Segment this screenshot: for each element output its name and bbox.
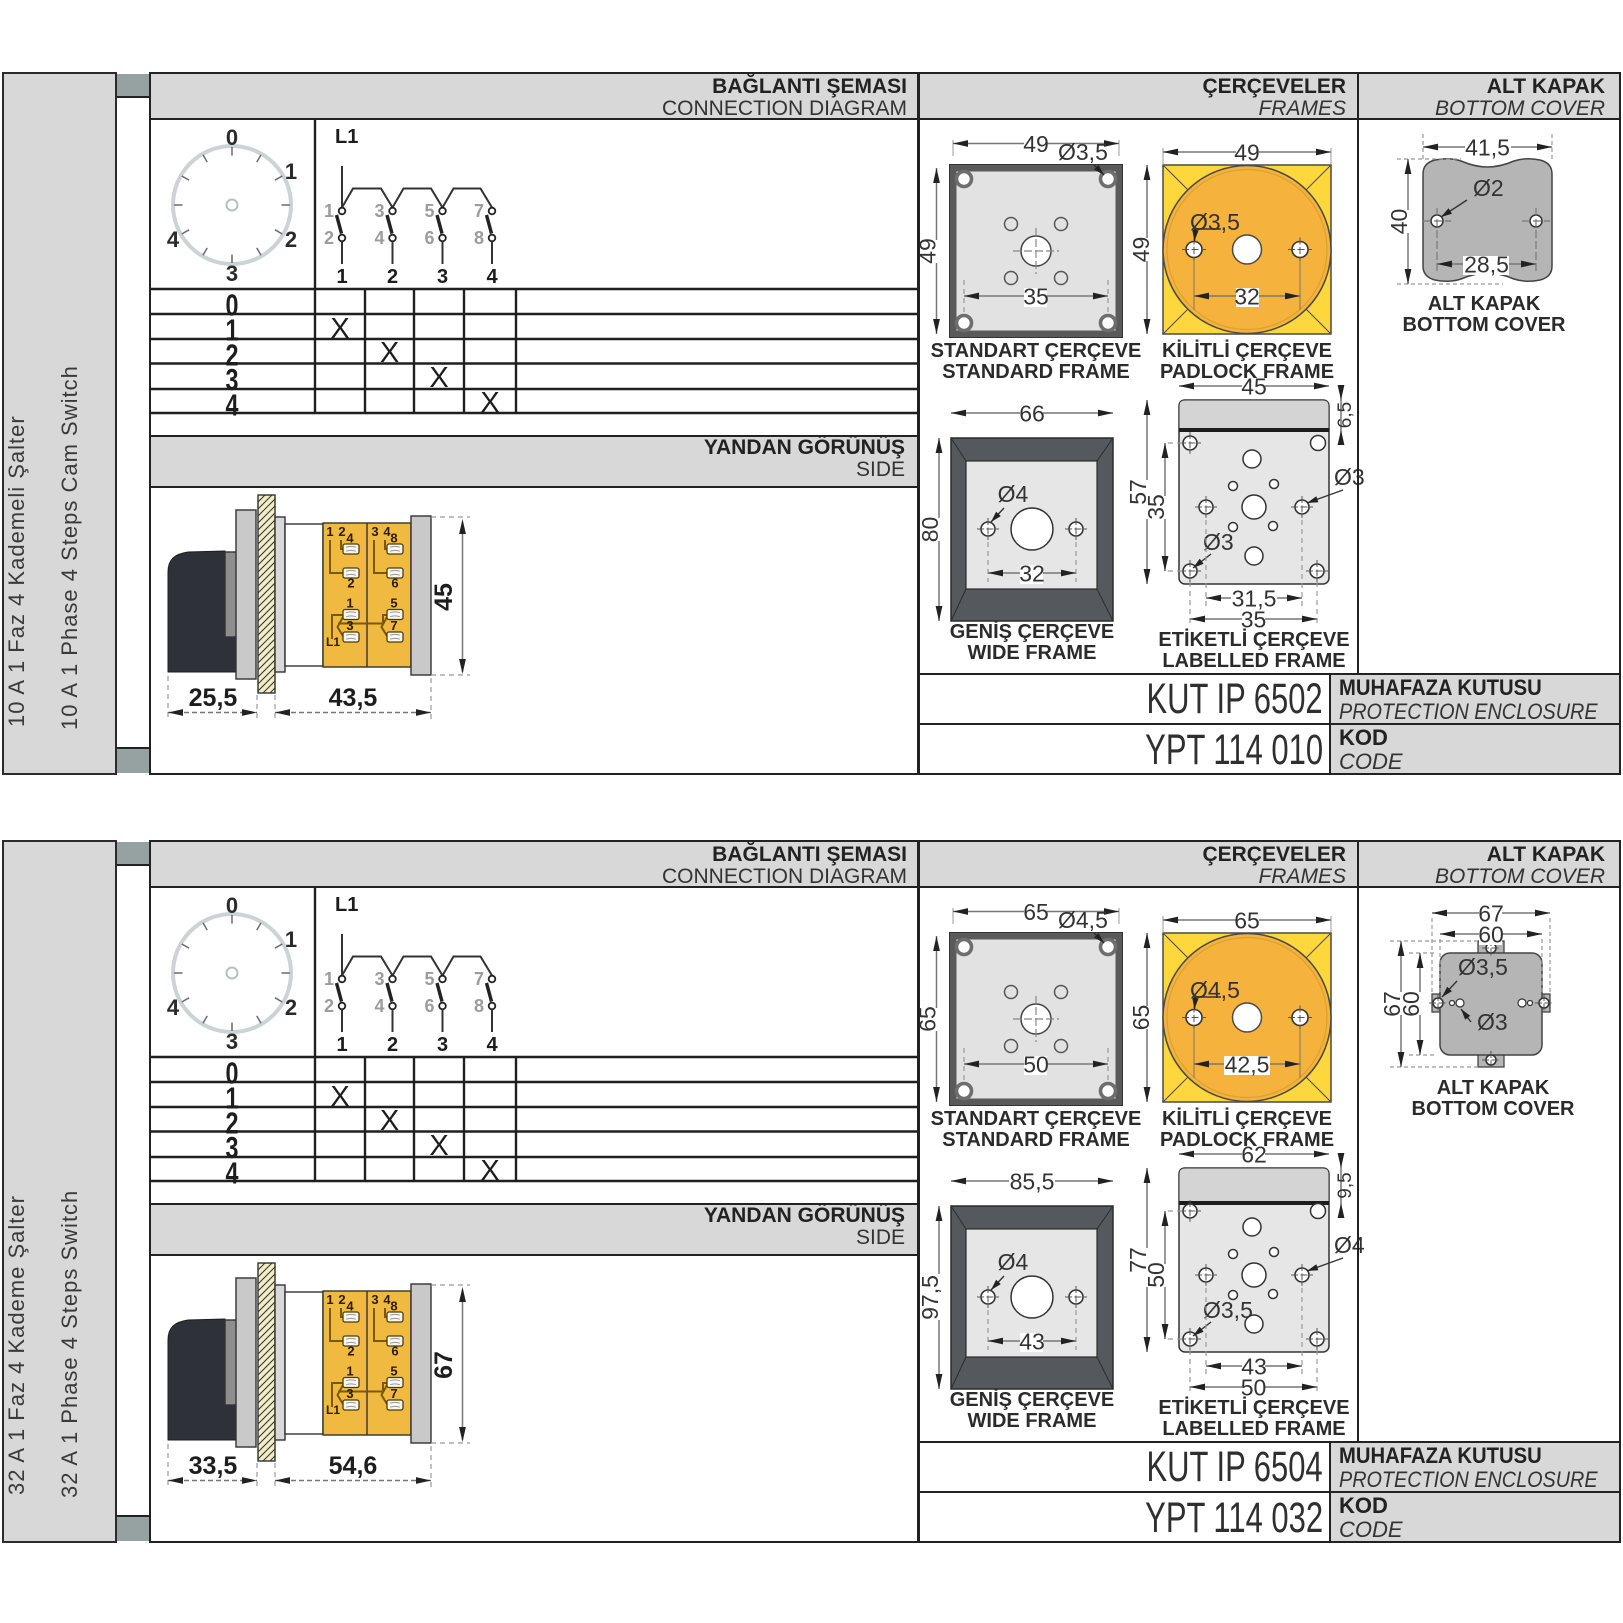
svg-text:45: 45 bbox=[430, 583, 458, 611]
svg-text:1: 1 bbox=[326, 524, 333, 539]
svg-text:60: 60 bbox=[1398, 991, 1424, 1017]
svg-text:X: X bbox=[380, 1105, 399, 1137]
svg-text:50: 50 bbox=[1143, 1262, 1169, 1288]
svg-text:45: 45 bbox=[1241, 373, 1267, 399]
svg-text:3: 3 bbox=[437, 1034, 448, 1056]
svg-text:1: 1 bbox=[285, 927, 297, 952]
svg-text:Ø2: Ø2 bbox=[1473, 175, 1504, 201]
svg-text:85,5: 85,5 bbox=[1010, 1168, 1055, 1194]
svg-text:1: 1 bbox=[324, 969, 334, 989]
svg-text:BOTTOM COVER: BOTTOM COVER bbox=[1403, 314, 1567, 336]
svg-text:43,5: 43,5 bbox=[329, 684, 378, 712]
svg-text:GENİŞ ÇERÇEVE: GENİŞ ÇERÇEVE bbox=[950, 1388, 1114, 1411]
svg-text:2: 2 bbox=[324, 228, 334, 248]
svg-text:5: 5 bbox=[424, 969, 434, 989]
svg-text:4: 4 bbox=[226, 388, 240, 423]
svg-text:L1: L1 bbox=[326, 1403, 340, 1417]
svg-text:WIDE FRAME: WIDE FRAME bbox=[968, 642, 1097, 664]
svg-text:1: 1 bbox=[324, 201, 334, 221]
svg-text:49: 49 bbox=[1128, 237, 1154, 263]
svg-text:54,6: 54,6 bbox=[329, 1452, 378, 1480]
svg-text:LABELLED FRAME: LABELLED FRAME bbox=[1162, 1418, 1345, 1440]
svg-text:6: 6 bbox=[391, 1344, 398, 1359]
svg-text:ALT KAPAK: ALT KAPAK bbox=[1428, 293, 1541, 315]
svg-text:WIDE FRAME: WIDE FRAME bbox=[968, 1410, 1097, 1432]
svg-text:Ø3,5: Ø3,5 bbox=[1458, 954, 1508, 980]
svg-text:40: 40 bbox=[1386, 209, 1412, 235]
svg-text:4: 4 bbox=[346, 531, 354, 546]
svg-text:28,5: 28,5 bbox=[1464, 251, 1509, 277]
svg-text:ETİKETLİ ÇERÇEVE: ETİKETLİ ÇERÇEVE bbox=[1158, 628, 1349, 651]
svg-text:X: X bbox=[480, 387, 499, 419]
svg-text:X: X bbox=[380, 337, 399, 369]
svg-text:LABELLED FRAME: LABELLED FRAME bbox=[1162, 650, 1345, 672]
svg-text:X: X bbox=[330, 1081, 349, 1113]
svg-text:9,5: 9,5 bbox=[1335, 1172, 1356, 1198]
svg-text:4: 4 bbox=[346, 1299, 354, 1314]
svg-text:8: 8 bbox=[390, 1299, 397, 1314]
svg-text:2: 2 bbox=[324, 996, 334, 1016]
svg-text:35: 35 bbox=[1023, 283, 1049, 309]
svg-text:3: 3 bbox=[437, 266, 448, 288]
svg-text:65: 65 bbox=[1023, 899, 1049, 925]
svg-text:49: 49 bbox=[1023, 131, 1049, 157]
svg-text:3: 3 bbox=[371, 524, 378, 539]
svg-text:65: 65 bbox=[1128, 1005, 1154, 1031]
svg-text:Ø3: Ø3 bbox=[1477, 1009, 1508, 1035]
svg-text:BOTTOM COVER: BOTTOM COVER bbox=[1412, 1098, 1576, 1120]
svg-text:4: 4 bbox=[486, 1034, 498, 1056]
svg-text:6: 6 bbox=[424, 228, 434, 248]
svg-text:2: 2 bbox=[338, 524, 345, 539]
svg-text:4: 4 bbox=[383, 524, 391, 539]
svg-text:2: 2 bbox=[387, 1034, 398, 1056]
svg-text:7: 7 bbox=[390, 1386, 397, 1401]
svg-text:1: 1 bbox=[336, 1034, 347, 1056]
svg-text:1: 1 bbox=[336, 266, 347, 288]
svg-text:32: 32 bbox=[1019, 560, 1045, 586]
svg-text:2: 2 bbox=[338, 1292, 345, 1307]
svg-text:3: 3 bbox=[226, 1029, 238, 1054]
svg-text:60: 60 bbox=[1478, 921, 1504, 947]
svg-text:4: 4 bbox=[486, 266, 498, 288]
svg-text:X: X bbox=[330, 313, 349, 345]
svg-text:4: 4 bbox=[383, 1292, 391, 1307]
svg-text:KİLİTLİ ÇERÇEVE: KİLİTLİ ÇERÇEVE bbox=[1162, 339, 1332, 362]
svg-text:4: 4 bbox=[167, 995, 180, 1020]
svg-text:L1: L1 bbox=[335, 894, 358, 916]
svg-text:4: 4 bbox=[226, 1156, 240, 1191]
svg-text:3: 3 bbox=[346, 1386, 353, 1401]
svg-text:2: 2 bbox=[347, 1344, 354, 1359]
svg-text:X: X bbox=[429, 362, 448, 394]
svg-text:7: 7 bbox=[390, 618, 397, 633]
svg-text:25,5: 25,5 bbox=[189, 684, 238, 712]
svg-text:Ø3,5: Ø3,5 bbox=[1203, 1297, 1253, 1323]
svg-text:STANDART ÇERÇEVE: STANDART ÇERÇEVE bbox=[931, 1108, 1142, 1130]
svg-text:97,5: 97,5 bbox=[917, 1275, 943, 1320]
svg-text:4: 4 bbox=[167, 227, 180, 252]
svg-text:Ø4: Ø4 bbox=[998, 1249, 1029, 1275]
svg-text:41,5: 41,5 bbox=[1465, 134, 1510, 160]
svg-text:2: 2 bbox=[285, 227, 297, 252]
svg-text:2: 2 bbox=[347, 576, 354, 591]
svg-text:80: 80 bbox=[917, 517, 943, 543]
svg-text:ETİKETLİ ÇERÇEVE: ETİKETLİ ÇERÇEVE bbox=[1158, 1396, 1349, 1419]
svg-text:65: 65 bbox=[1234, 907, 1260, 933]
svg-text:6: 6 bbox=[391, 576, 398, 591]
svg-text:Ø3: Ø3 bbox=[1203, 529, 1234, 555]
svg-text:3: 3 bbox=[346, 618, 353, 633]
svg-text:8: 8 bbox=[390, 531, 397, 546]
svg-text:6: 6 bbox=[424, 996, 434, 1016]
svg-text:Ø4: Ø4 bbox=[998, 481, 1029, 507]
svg-text:X: X bbox=[480, 1155, 499, 1187]
svg-text:5: 5 bbox=[390, 1364, 397, 1379]
svg-text:66: 66 bbox=[1019, 400, 1045, 426]
svg-text:3: 3 bbox=[371, 1292, 378, 1307]
svg-text:STANDARD FRAME: STANDARD FRAME bbox=[942, 361, 1129, 383]
svg-text:STANDARD FRAME: STANDARD FRAME bbox=[942, 1129, 1129, 1151]
svg-text:0: 0 bbox=[226, 893, 238, 918]
svg-text:5: 5 bbox=[424, 201, 434, 221]
svg-text:2: 2 bbox=[387, 266, 398, 288]
svg-text:33,5: 33,5 bbox=[189, 1452, 238, 1480]
svg-text:62: 62 bbox=[1241, 1141, 1267, 1167]
svg-text:32: 32 bbox=[1234, 283, 1260, 309]
svg-text:0: 0 bbox=[226, 125, 238, 150]
svg-text:49: 49 bbox=[1234, 139, 1260, 165]
svg-text:35: 35 bbox=[1143, 494, 1169, 520]
svg-text:8: 8 bbox=[474, 996, 484, 1016]
svg-text:L1: L1 bbox=[326, 635, 340, 649]
svg-text:1: 1 bbox=[346, 1364, 353, 1379]
svg-text:3: 3 bbox=[226, 261, 238, 286]
svg-text:ALT KAPAK: ALT KAPAK bbox=[1437, 1077, 1550, 1099]
svg-text:Ø4,5: Ø4,5 bbox=[1058, 907, 1108, 933]
svg-text:7: 7 bbox=[474, 969, 484, 989]
svg-text:1: 1 bbox=[326, 1292, 333, 1307]
svg-text:3: 3 bbox=[374, 201, 384, 221]
svg-text:GENİŞ ÇERÇEVE: GENİŞ ÇERÇEVE bbox=[950, 620, 1114, 643]
svg-text:43: 43 bbox=[1019, 1328, 1045, 1354]
svg-text:2: 2 bbox=[285, 995, 297, 1020]
svg-text:67: 67 bbox=[430, 1351, 458, 1379]
svg-text:50: 50 bbox=[1023, 1051, 1049, 1077]
svg-text:7: 7 bbox=[474, 201, 484, 221]
svg-text:Ø3,5: Ø3,5 bbox=[1058, 139, 1108, 165]
svg-text:1: 1 bbox=[285, 159, 297, 184]
svg-text:4: 4 bbox=[374, 228, 384, 248]
svg-text:1: 1 bbox=[346, 596, 353, 611]
svg-text:X: X bbox=[429, 1130, 448, 1162]
svg-text:L1: L1 bbox=[335, 126, 358, 148]
svg-text:5: 5 bbox=[390, 596, 397, 611]
svg-text:STANDART ÇERÇEVE: STANDART ÇERÇEVE bbox=[931, 340, 1142, 362]
svg-text:KİLİTLİ ÇERÇEVE: KİLİTLİ ÇERÇEVE bbox=[1162, 1107, 1332, 1130]
svg-text:8: 8 bbox=[474, 228, 484, 248]
svg-text:42,5: 42,5 bbox=[1225, 1051, 1270, 1077]
svg-text:3: 3 bbox=[374, 969, 384, 989]
svg-text:4: 4 bbox=[374, 996, 384, 1016]
svg-text:6,5: 6,5 bbox=[1335, 402, 1356, 428]
